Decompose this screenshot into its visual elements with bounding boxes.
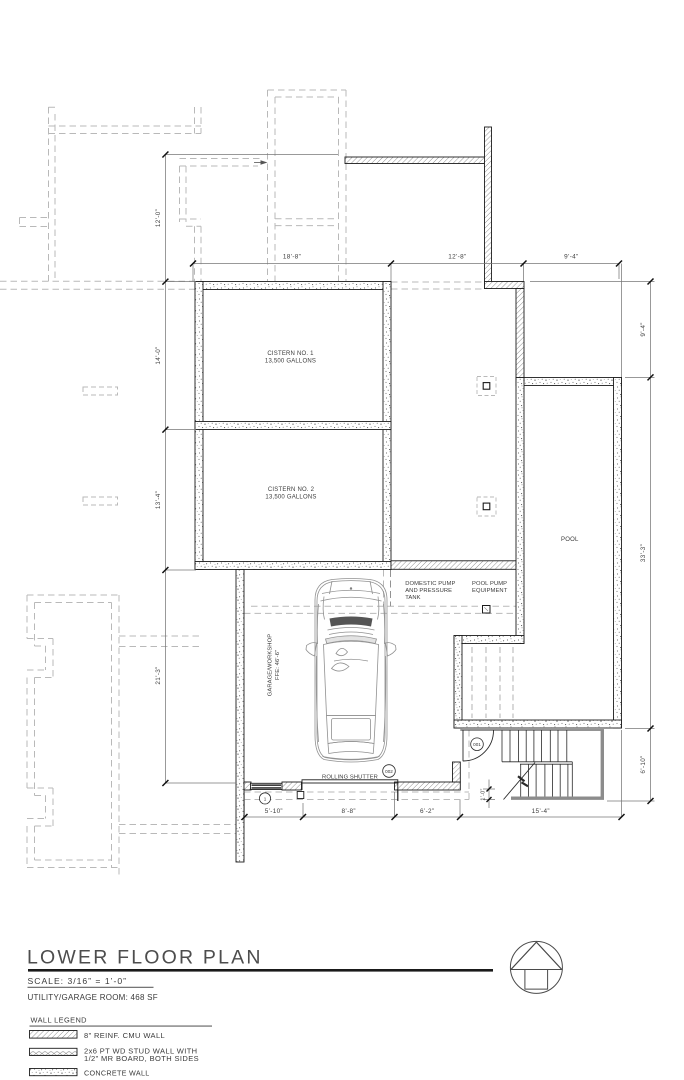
svg-text:13’-4”: 13’-4”	[155, 491, 162, 509]
svg-text:8” REINF. CMU WALL: 8” REINF. CMU WALL	[84, 1031, 165, 1040]
svg-text:13,500 GALLONS: 13,500 GALLONS	[265, 494, 316, 500]
svg-text:FFE: 46’-6”: FFE: 46’-6”	[275, 650, 281, 680]
svg-text:CISTERN NO. 1: CISTERN NO. 1	[267, 351, 314, 357]
svg-text:9’-4”: 9’-4”	[640, 322, 647, 336]
svg-text:002: 002	[385, 769, 393, 774]
svg-text:8’-8”: 8’-8”	[342, 808, 356, 815]
svg-text:DOMESTIC PUMP: DOMESTIC PUMP	[405, 581, 455, 587]
svg-text:1’-0”: 1’-0”	[481, 788, 487, 800]
svg-text:18’-8”: 18’-8”	[283, 253, 301, 260]
svg-text:12’-0”: 12’-0”	[155, 209, 162, 227]
svg-text:12’-8”: 12’-8”	[448, 253, 466, 260]
svg-text:13,500 GALLONS: 13,500 GALLONS	[265, 358, 316, 364]
svg-text:14’-0”: 14’-0”	[155, 346, 162, 364]
svg-text:GARAGE/WORKSHOP: GARAGE/WORKSHOP	[268, 634, 274, 696]
svg-text:UTILITY/GARAGE ROOM: 468 SF: UTILITY/GARAGE ROOM: 468 SF	[28, 993, 158, 1002]
svg-text:WALL LEGEND: WALL LEGEND	[31, 1016, 87, 1025]
svg-text:POOL PUMP: POOL PUMP	[472, 581, 507, 587]
svg-text:9’-4”: 9’-4”	[564, 253, 578, 260]
svg-text:CISTERN NO. 2: CISTERN NO. 2	[268, 487, 315, 493]
svg-text:21’-3”: 21’-3”	[155, 666, 162, 684]
svg-text:6’-2”: 6’-2”	[420, 808, 434, 815]
svg-text:5’-10”: 5’-10”	[265, 808, 283, 815]
svg-text:ROLLING SHUTTER: ROLLING SHUTTER	[322, 775, 378, 781]
svg-text:33’-3”: 33’-3”	[640, 544, 647, 562]
svg-text:15’-4”: 15’-4”	[532, 808, 550, 815]
svg-text:LOWER FLOOR PLAN: LOWER FLOOR PLAN	[27, 947, 263, 969]
svg-text:6’-10”: 6’-10”	[640, 755, 647, 773]
svg-text:TANK: TANK	[405, 595, 420, 601]
svg-text:POOL: POOL	[561, 537, 579, 543]
svg-text:AND PRESSURE: AND PRESSURE	[405, 588, 452, 594]
svg-text:1/2” MR BOARD, BOTH SIDES: 1/2” MR BOARD, BOTH SIDES	[84, 1054, 199, 1063]
svg-text:SCALE: 3/16” = 1’-0”: SCALE: 3/16” = 1’-0”	[28, 976, 128, 986]
svg-text:EQUIPMENT: EQUIPMENT	[472, 588, 508, 594]
svg-text:1: 1	[264, 796, 267, 801]
svg-text:001: 001	[473, 742, 481, 747]
svg-text:CONCRETE WALL: CONCRETE WALL	[84, 1069, 150, 1078]
